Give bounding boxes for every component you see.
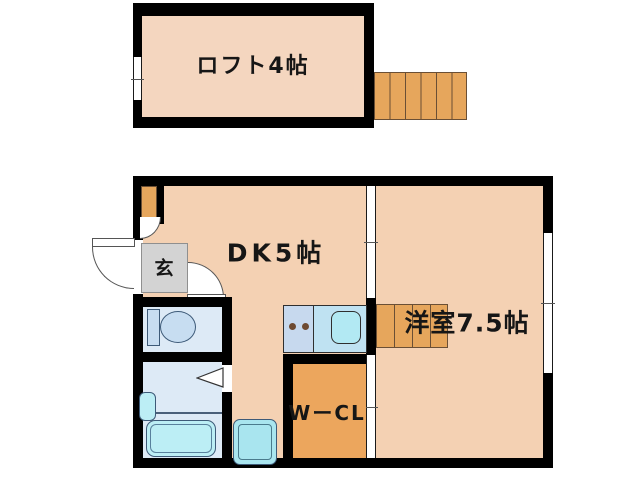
loft-window-icon <box>133 57 142 100</box>
entrance-door-icon <box>92 238 135 247</box>
loft-room-label: ロフト4帖 <box>196 56 309 78</box>
western-room-label: 洋室7.5帖 <box>404 311 529 336</box>
floor-plan: ロフト4帖 玄 <box>0 0 640 480</box>
kitchen-counter-icon <box>283 305 367 353</box>
dk-room-label: DK5帖 <box>227 241 326 266</box>
bathtub-icon <box>146 420 216 457</box>
loft-stairs-icon <box>374 72 467 120</box>
entrance-door-swing-arc <box>92 247 134 289</box>
sliding-door-icon-dk <box>366 186 376 298</box>
door-tick <box>364 407 378 408</box>
pan-inner-line <box>238 424 272 460</box>
gas-burner-icon <box>302 323 309 330</box>
sliding-door-icon-closet <box>366 355 376 458</box>
entrance-label: 玄 <box>154 260 173 279</box>
window-tick <box>131 79 144 80</box>
toilet-bowl-icon <box>160 311 196 343</box>
bathtub-inner-line <box>150 424 212 453</box>
toilet-top-wall <box>143 297 232 307</box>
bathroom-folding-door-icon <box>196 366 224 389</box>
western-room-window-icon <box>543 233 553 373</box>
gas-burner-icon <box>289 323 296 330</box>
window-tick <box>541 303 555 304</box>
door-tick <box>364 242 378 243</box>
washbasin-icon <box>139 392 156 421</box>
closet-label: WーCL <box>288 403 365 423</box>
toilet-tank-icon <box>147 309 160 346</box>
loft-ladder-step-icon <box>141 186 157 218</box>
partition-wall-mid <box>366 298 376 355</box>
toilet-bath-wall <box>143 352 232 362</box>
washing-machine-pan-icon <box>233 419 277 465</box>
closet-top-wall <box>283 354 366 364</box>
kitchen-sink-icon <box>331 311 361 344</box>
